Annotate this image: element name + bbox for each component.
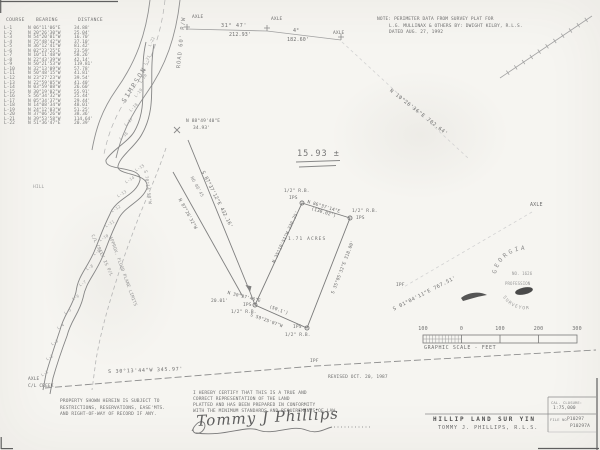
course-table: L-1N 06°11'06"E34.88' L-2N 20°26'30"W25.… [4, 27, 104, 127]
scale-tick-label: 300 [567, 326, 587, 332]
cell-bearing: N 51°36'47"E [28, 122, 74, 127]
north-seg2-bearing: 4° [293, 28, 299, 34]
survey-note-line3: DATED AUG. 27, 1992 [389, 30, 443, 35]
parcel-area-label: 1.71 ACRES [288, 237, 326, 242]
rebar-marker-label: 1/2" R.B. [284, 189, 310, 194]
seal-number: NO. 1626 [512, 271, 532, 276]
property-note-line1: PROPERTY SHOWN HEREIN IS SUBJECT TO [60, 399, 160, 404]
certification-line2: CORRECT REPRESENTATION OF THE LAND [193, 397, 290, 402]
cell-course: L-22 [4, 122, 28, 127]
firm-name: HILLIP LAND SUR YIN [433, 416, 536, 423]
ips-marker-label: IPS [356, 216, 365, 221]
cl-creek-label: C/L CREEK [28, 384, 54, 389]
survey-note-line1: NOTE: PERIMETER DATA FROM SURVEY PLAT FO… [377, 17, 494, 22]
ips-marker-label: IPS [289, 196, 298, 201]
firm-surveyor-name: TOMMY J. PHILLIPS, R.L.S. [438, 425, 538, 431]
ink-swoosh [461, 293, 487, 301]
rebar-marker-label: 1/2" R.B. [352, 209, 378, 214]
tie-distance-label: 34.93' [193, 126, 210, 131]
header-distance: DISTANCE [78, 18, 112, 23]
revised-date-label: REVISED OCT. 20, 1987 [328, 375, 388, 380]
survey-note-line2: L.G. MULLINAX & OTHERS BY: DWIGHT KILBY,… [389, 24, 523, 29]
north-seg1-distance: 212.93' [229, 32, 251, 38]
axle-marker-label: AXLE [530, 202, 543, 208]
scale-tick-label: 200 [529, 326, 549, 332]
vstrip-tie-distance: 20.01' [211, 299, 228, 304]
ips-marker-label: IPS [243, 303, 252, 308]
seal-profession: PROFESSION [505, 281, 530, 286]
small-parcel-polygon [253, 201, 352, 330]
rebar-marker-label: 1/2" R.B. [285, 333, 311, 338]
scale-tick-label: 100 [413, 326, 433, 332]
seal-ink-blob [514, 286, 533, 297]
certification-line1: I HEREBY CERTIFY THAT THIS IS A TRUE AND [193, 391, 307, 396]
header-course: COURSE [6, 18, 36, 23]
header-bearing: BEARING [36, 18, 78, 23]
north-boundary-line [184, 24, 344, 40]
axle-marker-label: AXLE [192, 15, 203, 20]
file-number-1: P10297 [567, 417, 584, 422]
file-number-2: P10297A [570, 424, 590, 429]
property-note-line3: AND RIGHT-OF-WAY OF RECORD IF ANY. [60, 412, 157, 417]
ips-marker-label: IPS [293, 325, 302, 330]
axle-marker-label: AXLE [333, 31, 344, 36]
flood-plane-line [92, 148, 166, 390]
north-seg2-distance: 182.60' [287, 37, 309, 43]
scale-caption: GRAPHIC SCALE - FEET [424, 345, 496, 351]
cell-distance: 20.39' [74, 122, 104, 127]
tie-bearing-label: N 88°49'40"E [186, 119, 220, 124]
survey-plat-page: GEORGIA SURVEYOR COURSE BEARING DISTANCE… [0, 0, 600, 450]
surveyor-seal: GEORGIA SURVEYOR [461, 245, 534, 312]
tract-area-label: 15.93 ± [297, 149, 340, 159]
seal-surveyor-text: SURVEYOR [501, 295, 530, 312]
area-underline [296, 161, 340, 168]
closure-label: CAL. CLOSURE: [551, 400, 582, 405]
course-table-header: COURSE BEARING DISTANCE [6, 18, 112, 23]
graphic-scale-bar [423, 335, 577, 343]
scale-tick-label: 100 [490, 326, 510, 332]
scale-tick-label: 0 [452, 326, 472, 332]
axle-marker-label: AXLE [271, 17, 282, 22]
property-note-line2: RESTRICTIONS, RESERVATIONS, EASE'MTS. [60, 406, 165, 411]
ipf-marker-label: IPF [396, 283, 405, 288]
axle-creek-label: AXLE [28, 377, 39, 382]
north-seg1-bearing: 31° 47' [221, 23, 247, 29]
east-boundary-lines [342, 42, 532, 288]
ipf-marker-label: IPF [310, 359, 319, 364]
closure-value: 1:75,000 [553, 406, 576, 411]
svg-text:SURVEYOR: SURVEYOR [501, 295, 530, 312]
hill-label: HILL [33, 185, 44, 190]
